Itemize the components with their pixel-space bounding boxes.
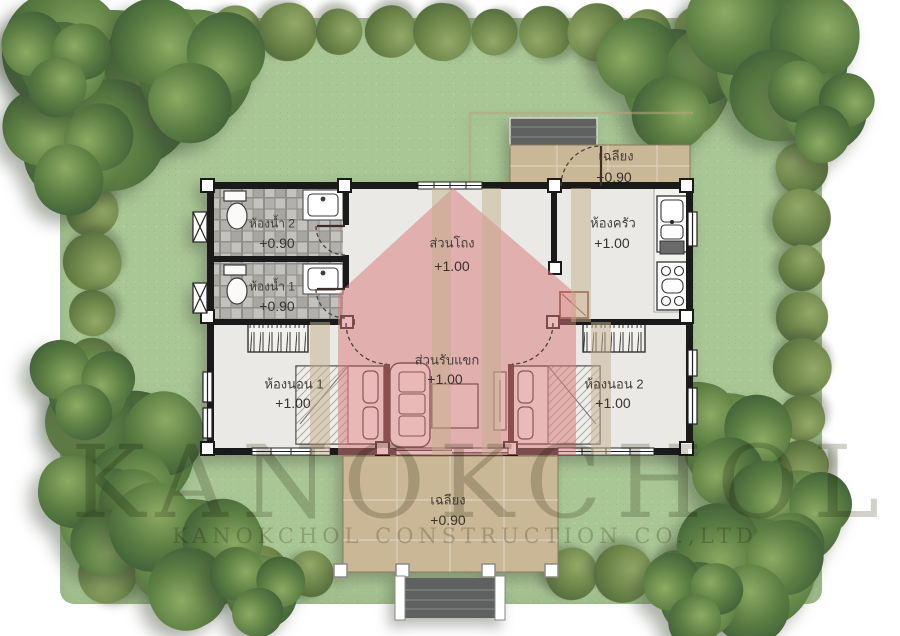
elev-hall: +1.00 [434,258,469,274]
elev-porch-bottom: +0.90 [430,512,465,528]
elev-living: +1.00 [427,371,462,387]
wardrobe-bedroom1 [248,322,308,352]
elev-kitchen: +1.00 [594,235,629,251]
site-plan: ห้องน้ำ 2 +0.90 ห้องน้ำ 1 +0.90 ส่วนโถง … [0,0,900,636]
sink-bath2 [303,190,343,220]
label-bedroom1: ห้องนอน 1 [264,374,323,395]
elev-porch-top: +0.90 [596,169,631,185]
label-porch-bottom: เฉลียง [430,490,465,511]
label-bathroom1: ห้องน้ำ 1 [249,278,295,297]
kitchen-counter [654,188,688,312]
elev-bedroom1: +1.00 [275,395,310,411]
label-porch-top: เฉลียง [598,146,633,167]
porch-bottom [334,456,558,620]
porch-top-steps [510,118,597,147]
label-bathroom2: ห้องน้ำ 2 [249,215,295,234]
kitchen-stove [657,262,687,310]
label-hall: ส่วนโถง [429,233,474,254]
label-bedroom2: ห้องนอน 2 [584,374,643,395]
label-kitchen: ห้องครัว [590,213,636,234]
porch-bottom-steps [395,576,505,620]
floor-plan [0,0,900,636]
label-living: ส่วนรับแขก [415,350,480,371]
elev-bedroom2: +1.00 [595,395,630,411]
elev-bathroom1: +0.90 [259,298,294,314]
elev-bathroom2: +0.90 [259,235,294,251]
